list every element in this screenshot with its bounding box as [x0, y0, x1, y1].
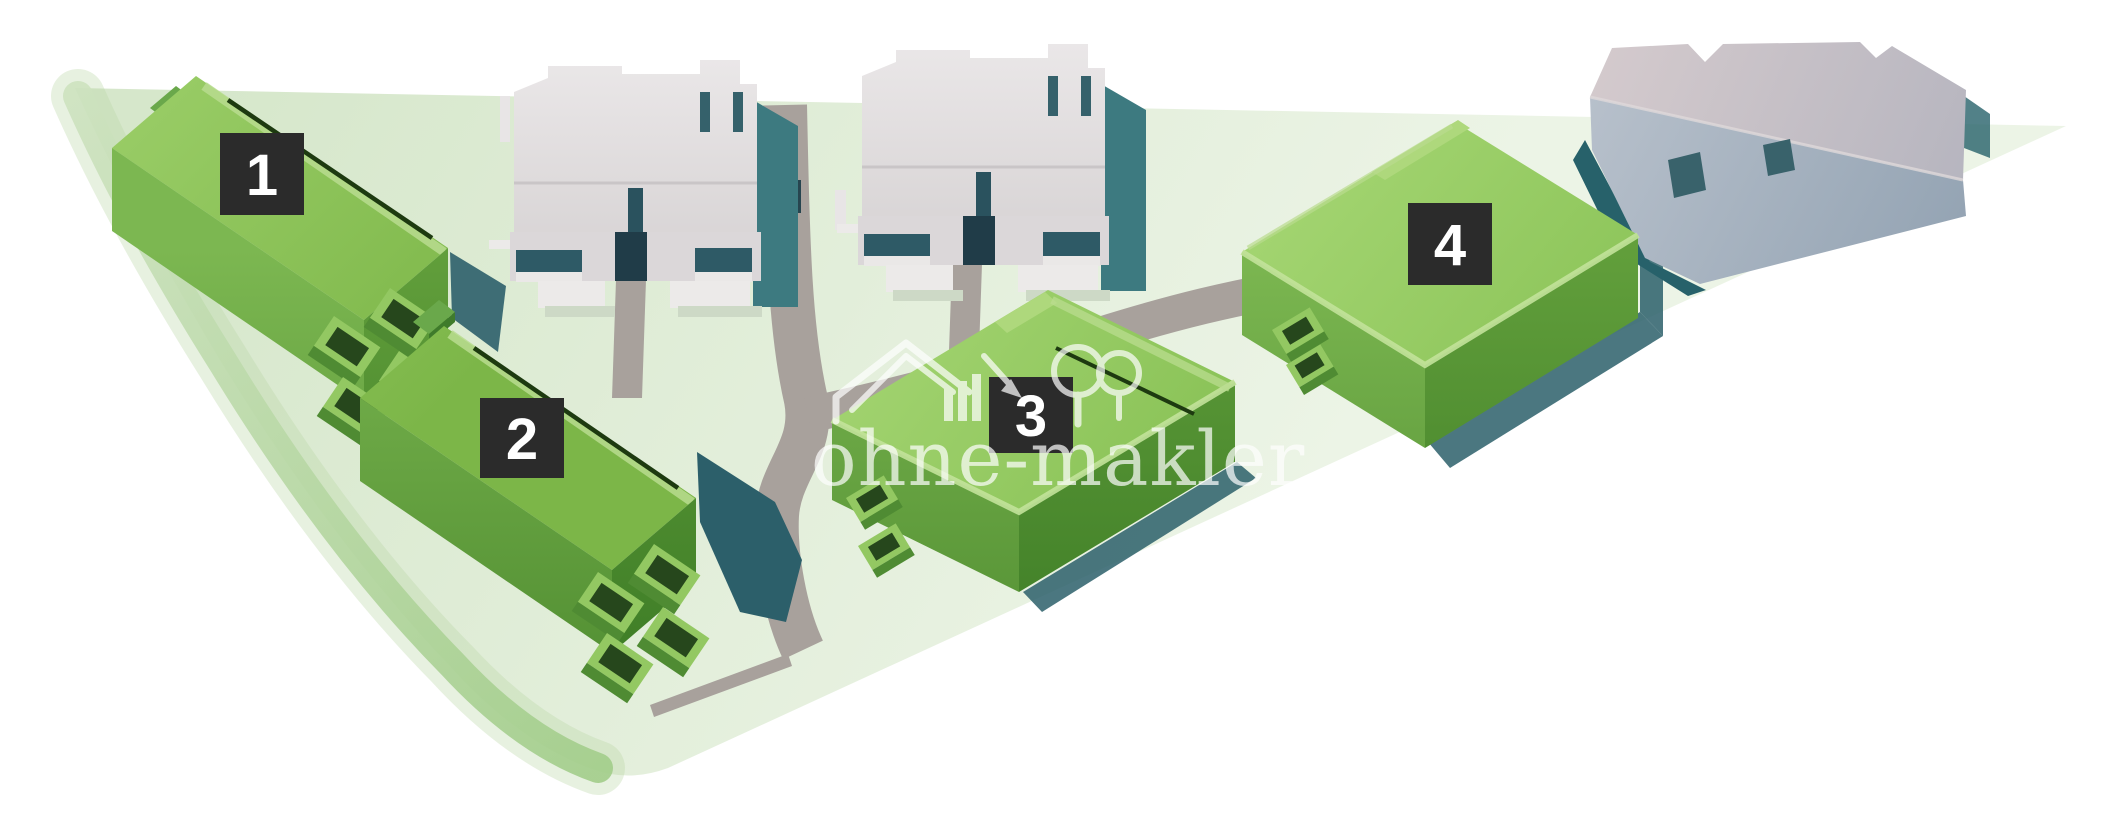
- terrace-pad: [670, 281, 750, 308]
- pad-shadow: [545, 306, 615, 317]
- driveway-left: [612, 280, 646, 398]
- pad-shadow: [893, 290, 963, 301]
- balcony-recess: [516, 250, 582, 274]
- terrace-pad: [1018, 265, 1098, 292]
- terrace-pad: [538, 281, 605, 308]
- building-label-1: 1: [220, 133, 304, 215]
- balcony-recess: [864, 234, 930, 258]
- apartment-block-left: [489, 60, 762, 317]
- roof-slot: [733, 92, 743, 132]
- roof-slot: [1081, 76, 1091, 116]
- label-text-4: 4: [1434, 213, 1466, 278]
- label-text-2: 2: [506, 407, 538, 472]
- balcony-recess: [1043, 232, 1100, 258]
- apartment-block-right: [835, 44, 1110, 301]
- roof-notch: [1763, 139, 1795, 176]
- side-wall: [500, 96, 510, 142]
- roof-slot: [1048, 76, 1058, 116]
- label-text-1: 1: [246, 143, 278, 208]
- roof-slot: [700, 92, 710, 132]
- building-label-4: 4: [1408, 203, 1492, 285]
- roof-notch: [1668, 152, 1706, 198]
- stair-slot: [976, 172, 991, 216]
- watermark-text: ohne-makler: [811, 414, 1305, 503]
- balcony-floor: [516, 272, 582, 282]
- site-plan-canvas: 1 2 3 4 ohne-makler: [0, 0, 2115, 830]
- balcony-floor: [864, 256, 930, 266]
- existing-building: [1590, 42, 1966, 284]
- terrace-pad: [886, 265, 953, 292]
- stair-slot: [628, 188, 643, 232]
- balcony-floor: [695, 272, 752, 282]
- passage-opening: [963, 216, 995, 265]
- building-label-2: 2: [480, 398, 564, 478]
- pad-shadow: [678, 306, 762, 317]
- shadow-existing-building-right: [1964, 96, 1990, 158]
- passage-opening: [615, 232, 647, 281]
- site-plan-rendering: 1 2 3 4 ohne-makler: [0, 0, 2115, 830]
- balcony-recess: [695, 248, 752, 274]
- balcony-floor: [1043, 256, 1100, 266]
